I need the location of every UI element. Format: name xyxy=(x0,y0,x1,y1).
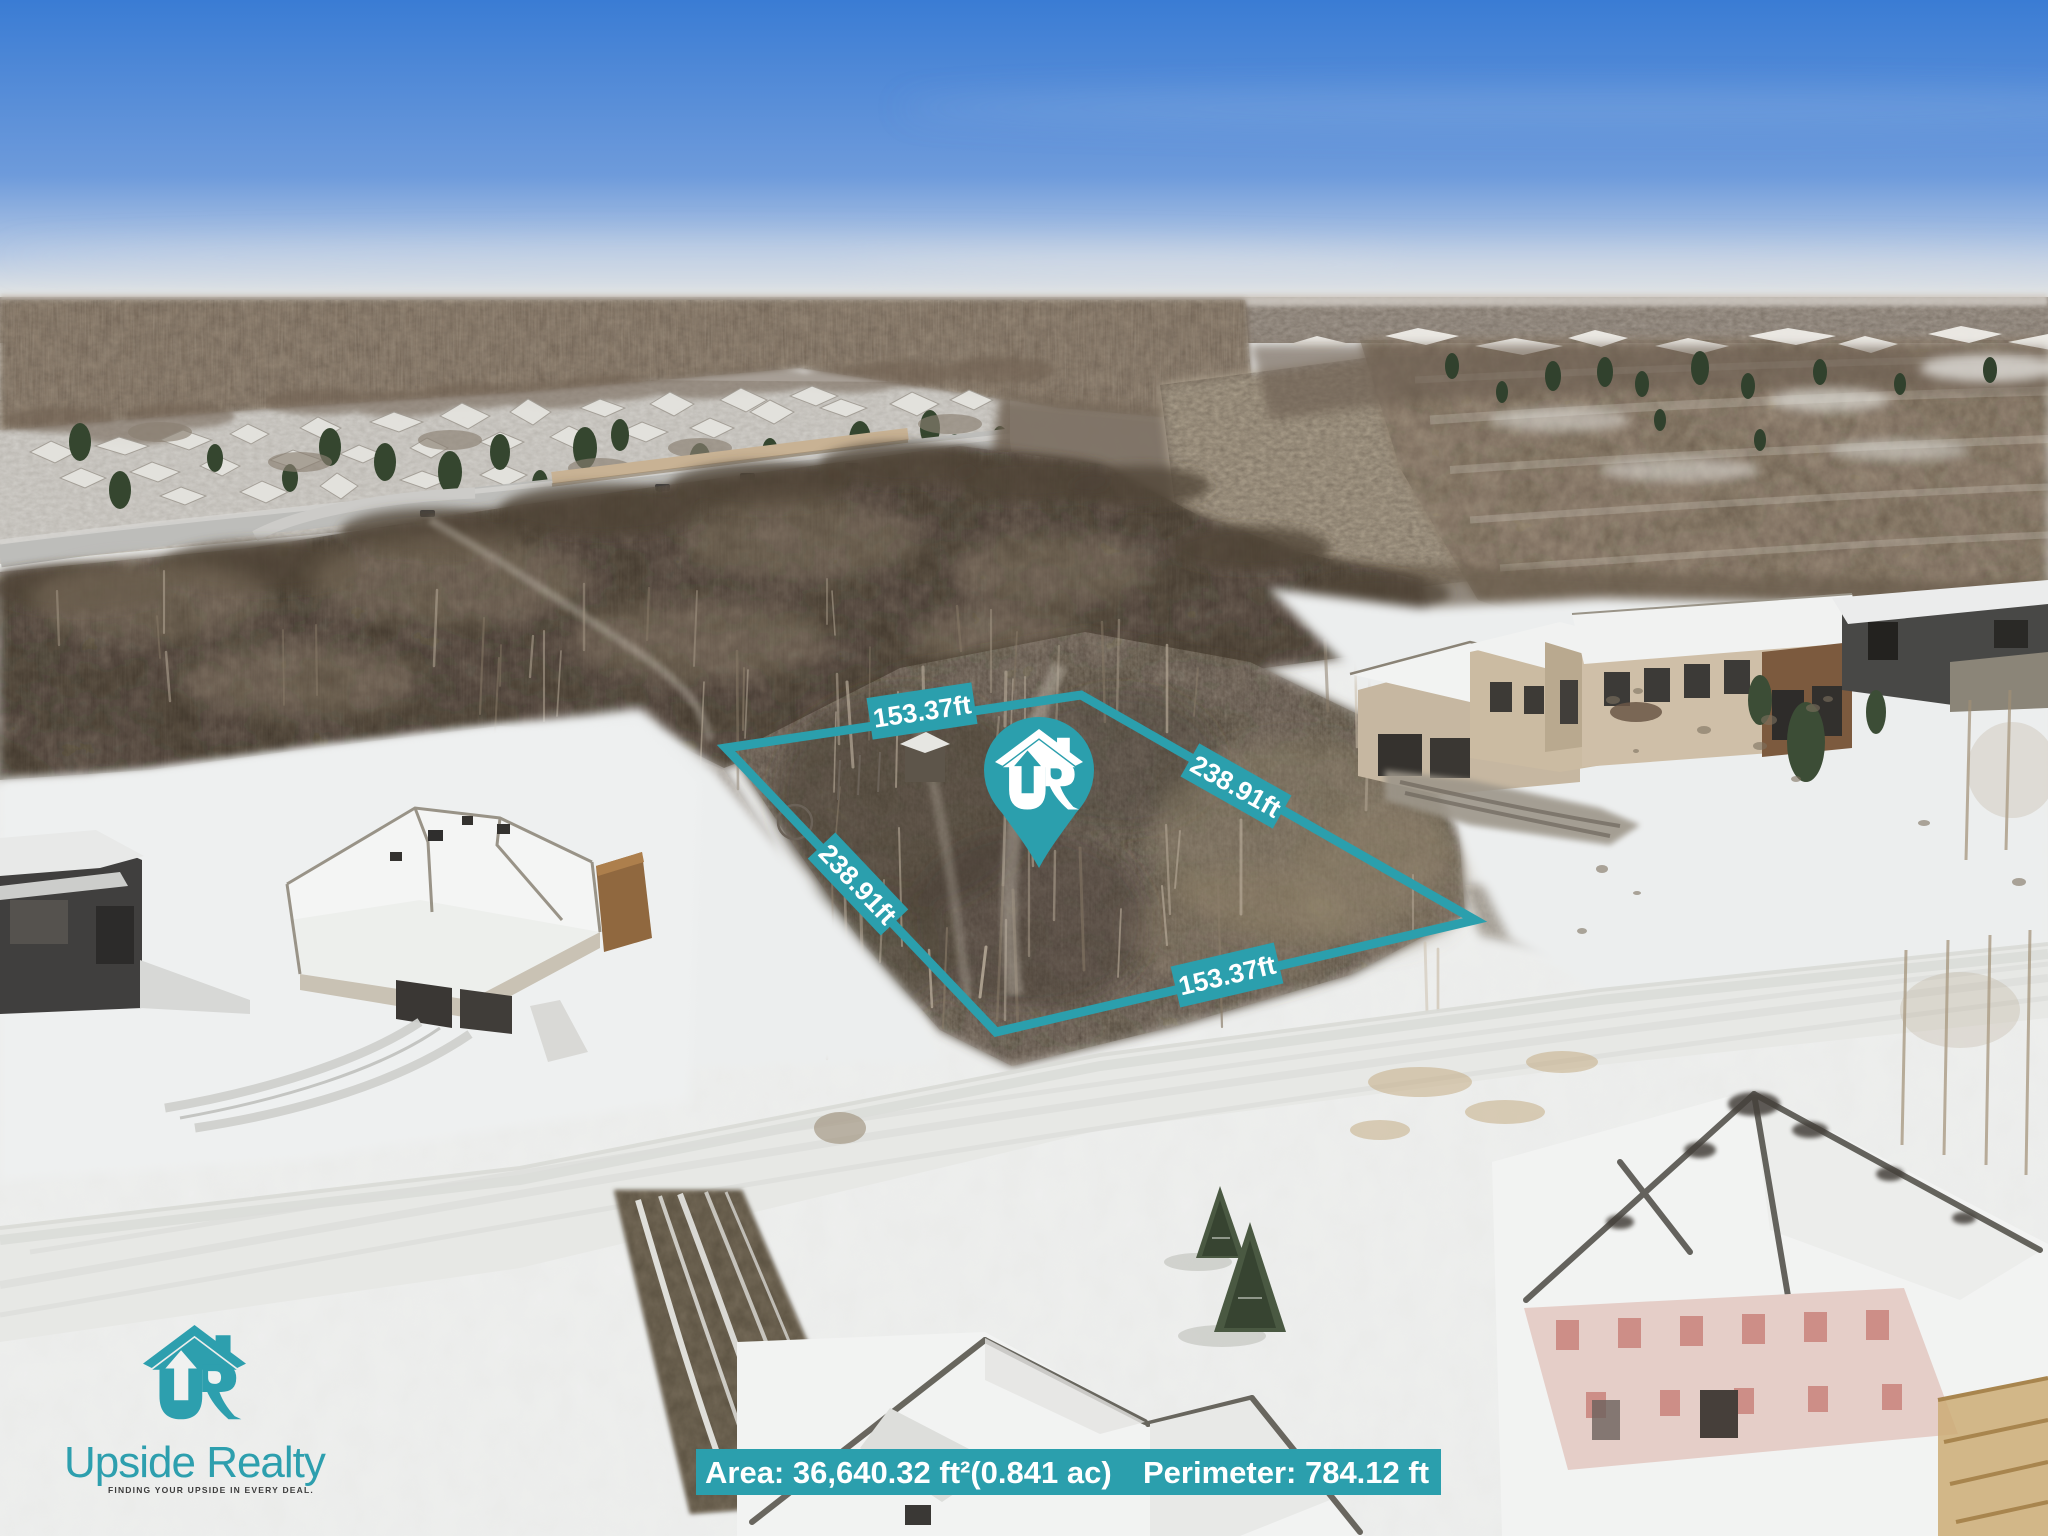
svg-text:FINDING YOUR UPSIDE IN EVERY D: FINDING YOUR UPSIDE IN EVERY DEAL. xyxy=(108,1485,314,1495)
svg-text:Area: 36,640.32 ft²(0.841 ac): Area: 36,640.32 ft²(0.841 ac) xyxy=(705,1455,1112,1490)
svg-text:Perimeter: 784.12 ft: Perimeter: 784.12 ft xyxy=(1143,1455,1429,1490)
svg-text:Upside Realty: Upside Realty xyxy=(64,1438,326,1487)
